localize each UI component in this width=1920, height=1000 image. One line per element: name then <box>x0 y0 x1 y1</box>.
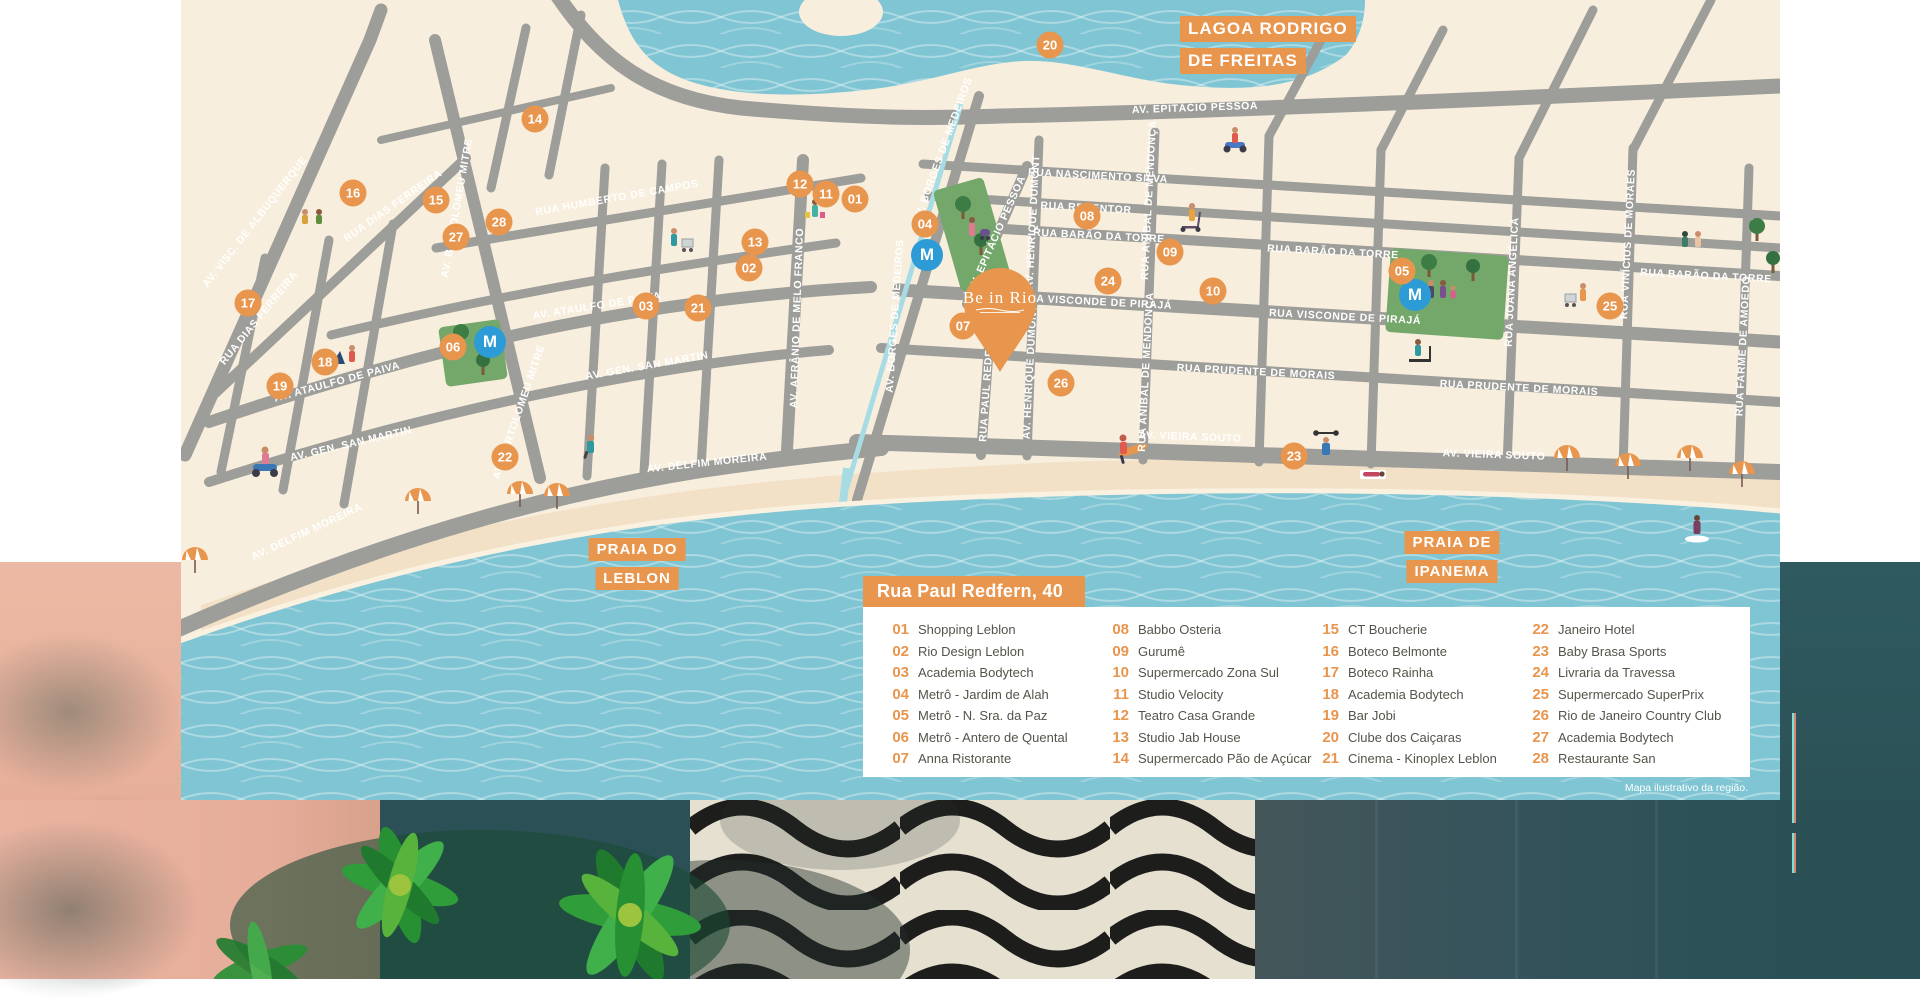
map-marker-18: 18 <box>312 349 339 376</box>
legend-item-label: Studio Velocity <box>1138 687 1223 702</box>
map-marker-27: 27 <box>443 224 470 251</box>
legend-item-label: Supermercado Zona Sul <box>1138 665 1279 680</box>
map-marker-01: 01 <box>842 186 869 213</box>
legend-item-number: 20 <box>1317 729 1339 746</box>
legend-item-label: Metrô - N. Sra. da Paz <box>918 708 1047 723</box>
legend-item-03: 03Academia Bodytech <box>887 662 1107 684</box>
legend-item-02: 02Rio Design Leblon <box>887 641 1107 663</box>
legend-item-23: 23Baby Brasa Sports <box>1527 641 1750 663</box>
map-marker-25: 25 <box>1597 293 1624 320</box>
map-marker-20: 20 <box>1037 32 1064 59</box>
project-logo: Be in Rio <box>952 288 1048 308</box>
legend-item-number: 22 <box>1527 621 1549 638</box>
beach-umbrella-icon <box>1613 452 1643 484</box>
legend-item-label: Bar Jobi <box>1348 708 1396 723</box>
logo-tagline-rule <box>980 312 1020 313</box>
map-disclaimer: Mapa ilustrativo da região. <box>1625 782 1748 794</box>
legend-item-label: Supermercado Pão de Açúcar <box>1138 751 1311 766</box>
legend-item-19: 19Bar Jobi <box>1317 705 1527 727</box>
legend-items: 01Shopping Leblon02Rio Design Leblon03Ac… <box>887 619 1750 770</box>
legend-item-04: 04Metrô - Jardim de Alah <box>887 684 1107 706</box>
legend-item-label: Boteco Rainha <box>1348 665 1433 680</box>
cafe-couple-illustration <box>302 209 322 224</box>
legend-item-number: 27 <box>1527 729 1549 746</box>
map-marker-13: 13 <box>742 229 769 256</box>
map-marker-23: 23 <box>1281 443 1308 470</box>
legend-item-number: 24 <box>1527 664 1549 681</box>
map-marker-26: 26 <box>1048 370 1075 397</box>
map-marker-02: 02 <box>736 255 763 282</box>
area-label-line: IPANEMA <box>1406 560 1497 583</box>
legend-item-17: 17Boteco Rainha <box>1317 662 1527 684</box>
lane-marking <box>1792 833 1796 873</box>
road-streak <box>1515 800 1518 979</box>
legend-item-number: 23 <box>1527 643 1549 660</box>
legend-item-label: Academia Bodytech <box>918 665 1034 680</box>
map-marker-06: 06 <box>440 334 467 361</box>
legend-item-26: 26Rio de Janeiro Country Club <box>1527 705 1750 727</box>
map-marker-15: 15 <box>423 187 450 214</box>
aerial-photo-bottom <box>0 800 1920 979</box>
map-marker-03: 03 <box>633 293 660 320</box>
legend-item-number: 15 <box>1317 621 1339 638</box>
legend-item-number: 08 <box>1107 621 1129 638</box>
legend-item-number: 28 <box>1527 750 1549 767</box>
map-marker-08: 08 <box>1074 203 1101 230</box>
page: { "map": { "caption": "Mapa ilustrativo … <box>0 0 1920 979</box>
legend-item-number: 11 <box>1107 686 1129 703</box>
metro-station-icon: M <box>474 326 506 358</box>
legend-item-label: Studio Jab House <box>1138 730 1241 745</box>
legend-item-12: 12Teatro Casa Grande <box>1107 705 1317 727</box>
map-marker-14: 14 <box>522 106 549 133</box>
map-marker-19: 19 <box>267 373 294 400</box>
area-label-leblon: PRAIA DOLEBLON <box>589 538 686 590</box>
legend-item-18: 18Academia Bodytech <box>1317 684 1527 706</box>
legend-item-label: Supermercado SuperPrix <box>1558 687 1704 702</box>
legend-item-label: Metrô - Jardim de Alah <box>918 687 1049 702</box>
legend-item-number: 01 <box>887 621 909 638</box>
legend-item-10: 10Supermercado Zona Sul <box>1107 662 1317 684</box>
map-marker-11: 11 <box>813 181 840 208</box>
sunbather-illustration <box>1360 470 1386 479</box>
beach-umbrella-icon <box>403 487 433 519</box>
metro-station-icon: M <box>911 239 943 271</box>
legend-item-number: 14 <box>1107 750 1129 767</box>
legend-title: Rua Paul Redfern, 40 <box>863 576 1085 607</box>
legend-item-number: 13 <box>1107 729 1129 746</box>
legend-item-05: 05Metrô - N. Sra. da Paz <box>887 705 1107 727</box>
legend-item-label: CT Boucherie <box>1348 622 1427 637</box>
legend-item-label: Rio Design Leblon <box>918 644 1024 659</box>
legend-item-number: 07 <box>887 750 909 767</box>
legend-item-number: 17 <box>1317 664 1339 681</box>
lane-marking <box>1792 713 1796 823</box>
legend-item-number: 12 <box>1107 707 1129 724</box>
beach-umbrella-icon <box>1552 444 1582 476</box>
legend-item-14: 14Supermercado Pão de Açúcar <box>1107 748 1317 770</box>
legend-item-07: 07Anna Ristorante <box>887 748 1107 770</box>
palm-shadow <box>0 632 180 792</box>
moto-rider-illustration <box>1224 127 1247 153</box>
legend-item-label: Academia Bodytech <box>1348 687 1464 702</box>
legend-item-28: 28Restaurante San <box>1527 748 1750 770</box>
aerial-road <box>1255 800 1920 979</box>
map-marker-22: 22 <box>492 444 519 471</box>
legend-item-01: 01Shopping Leblon <box>887 619 1107 641</box>
legend-item-label: Clube dos Caiçaras <box>1348 730 1461 745</box>
palm-trees <box>150 800 830 979</box>
legend-item-number: 03 <box>887 664 909 681</box>
map-marker-09: 09 <box>1157 239 1184 266</box>
legend-item-number: 19 <box>1317 707 1339 724</box>
shopper-cart-illustration <box>1565 283 1586 307</box>
legend-item-09: 09Gurumê <box>1107 641 1317 663</box>
legend-item-label: Babbo Osteria <box>1138 622 1221 637</box>
beach-umbrella-icon <box>1675 444 1705 476</box>
map-marker-12: 12 <box>787 171 814 198</box>
area-label-line: LAGOA RODRIGO <box>1180 16 1356 42</box>
legend-item-label: Shopping Leblon <box>918 622 1016 637</box>
area-label-line: PRAIA DO <box>589 538 686 561</box>
legend-item-number: 05 <box>887 707 909 724</box>
legend-item-label: Restaurante San <box>1558 751 1656 766</box>
legend-item-number: 04 <box>887 686 909 703</box>
map-marker-04: 04 <box>912 211 939 238</box>
legend-item-label: Teatro Casa Grande <box>1138 708 1255 723</box>
legend-item-number: 25 <box>1527 686 1549 703</box>
legend-item-number: 10 <box>1107 664 1129 681</box>
legend-item-label: Livraria da Travessa <box>1558 665 1675 680</box>
legend-item-label: Cinema - Kinoplex Leblon <box>1348 751 1497 766</box>
legend-item-number: 21 <box>1317 750 1339 767</box>
legend-item-label: Academia Bodytech <box>1558 730 1674 745</box>
area-label-line: DE FREITAS <box>1180 48 1306 74</box>
legend-item-number: 26 <box>1527 707 1549 724</box>
legend-item-label: Metrô - Antero de Quental <box>918 730 1068 745</box>
legend-item-21: 21Cinema - Kinoplex Leblon <box>1317 748 1527 770</box>
map-marker-21: 21 <box>685 295 712 322</box>
beach-umbrella-icon <box>542 482 572 514</box>
legend-item-label: Boteco Belmonte <box>1348 644 1447 659</box>
shopper-cart-illustration <box>671 228 693 252</box>
beach-umbrella-icon <box>1727 460 1757 492</box>
legend-item-label: Anna Ristorante <box>918 751 1011 766</box>
legend-item-24: 24Livraria da Travessa <box>1527 662 1750 684</box>
legend-item-11: 11Studio Velocity <box>1107 684 1317 706</box>
legend-item-number: 09 <box>1107 643 1129 660</box>
legend-item-20: 20Clube dos Caiçaras <box>1317 727 1527 749</box>
treadmill-runner-illustration <box>1409 339 1431 362</box>
legend-item-number: 18 <box>1317 686 1339 703</box>
legend-item-number: 06 <box>887 729 909 746</box>
legend-panel: 01Shopping Leblon02Rio Design Leblon03Ac… <box>863 607 1750 777</box>
legend-item-label: Gurumê <box>1138 644 1185 659</box>
beach-umbrella-icon <box>181 546 210 578</box>
legend-item-22: 22Janeiro Hotel <box>1527 619 1750 641</box>
beach-umbrella-icon <box>505 480 535 512</box>
legend-item-08: 08Babbo Osteria <box>1107 619 1317 641</box>
legend-item-label: Baby Brasa Sports <box>1558 644 1666 659</box>
legend-item-16: 16Boteco Belmonte <box>1317 641 1527 663</box>
road-streak <box>1375 800 1378 979</box>
legend-item-label: Rio de Janeiro Country Club <box>1558 708 1721 723</box>
legend-item-15: 15CT Boucherie <box>1317 619 1527 641</box>
area-label-lagoa: LAGOA RODRIGODE FREITAS <box>1180 16 1356 74</box>
legend-item-label: Janeiro Hotel <box>1558 622 1635 637</box>
road-streak <box>1655 800 1658 979</box>
map-marker-17: 17 <box>235 290 262 317</box>
map-marker-24: 24 <box>1095 268 1122 295</box>
map-marker-05: 05 <box>1389 258 1416 285</box>
area-label-line: PRAIA DE <box>1404 531 1499 554</box>
legend-item-27: 27Academia Bodytech <box>1527 727 1750 749</box>
legend-item-25: 25Supermercado SuperPrix <box>1527 684 1750 706</box>
legend-item-number: 16 <box>1317 643 1339 660</box>
legend-item-06: 06Metrô - Antero de Quental <box>887 727 1107 749</box>
area-label-line: LEBLON <box>595 567 679 590</box>
map-marker-10: 10 <box>1200 278 1227 305</box>
map-marker-07: 07 <box>950 313 977 340</box>
illustrated-map: AV. EPITÁCIO PESSOAAV. EPITÁCIO PESSOARU… <box>181 0 1780 800</box>
area-label-ipanema: PRAIA DEIPANEMA <box>1404 531 1499 583</box>
legend-item-13: 13Studio Jab House <box>1107 727 1317 749</box>
legend-item-number: 02 <box>887 643 909 660</box>
map-marker-16: 16 <box>340 180 367 207</box>
map-marker-28: 28 <box>486 209 513 236</box>
